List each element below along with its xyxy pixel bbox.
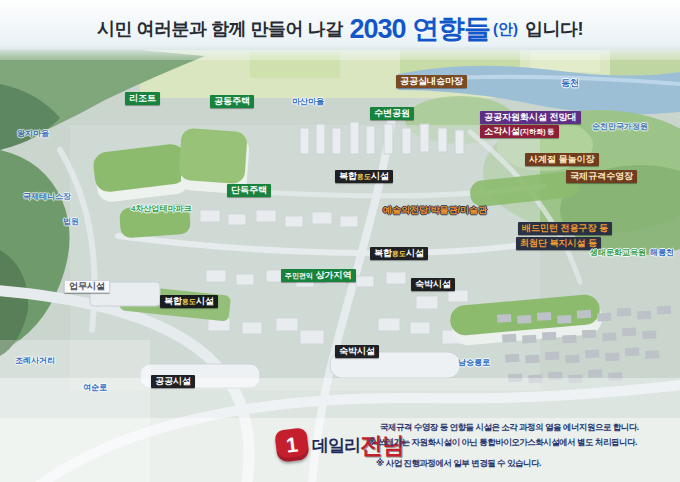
title-banner: 시민 여러분과 함께 만들어 나갈 2030 연향들 (안) 입니다! bbox=[0, 0, 680, 58]
label-arts-center: 예술의전당/박물관/미술관 bbox=[383, 206, 487, 215]
label-shopping-main: 상가지역 bbox=[316, 270, 352, 280]
press-image: 시민 여러분과 함께 만들어 나갈 2030 연향들 (안) 입니다! 리조트 … bbox=[0, 0, 680, 482]
label-intl-tennis: 국제테니스장 bbox=[23, 193, 71, 201]
mixed-use-part1: 복합 bbox=[164, 296, 182, 306]
disclaimer-line-2: ※ 쓰레기는 자원화시설이 아닌 통합바이오가스화시설에서 별도 처리됩니다. bbox=[368, 437, 637, 449]
mixed-use-part3: 시설 bbox=[196, 296, 214, 306]
label-haeryongcheon: 해룡천 bbox=[650, 249, 674, 257]
label-dongcheon: 동천 bbox=[561, 79, 579, 88]
label-detached-housing: 단독주택 bbox=[227, 184, 271, 197]
disclaimer-line-1: 국제규격 수영장 등 연향들 시설은 소각 과정의 열을 에너지원으로 합니다. bbox=[380, 422, 639, 434]
title-highlight: 2030 연향들 bbox=[349, 11, 490, 47]
label-riding-arena: 공공실내승마장 bbox=[396, 75, 467, 88]
label-lodging-2: 숙박시설 bbox=[335, 345, 379, 358]
label-shopping-small: 주민편익 bbox=[285, 272, 313, 279]
label-yeosun-ro: 여순로 bbox=[83, 384, 107, 392]
label-mixed-use-1: 복합용도시설 bbox=[335, 170, 393, 183]
label-industry-park: 4차산업테마파크 bbox=[131, 205, 191, 213]
mixed-use-part2: 용도 bbox=[392, 250, 406, 257]
disclaimer-line-3: ※ 사업 진행과정에서 일부 변경될 수 있습니다. bbox=[376, 458, 541, 470]
label-shopping: 주민편익 상가지역 bbox=[281, 269, 356, 282]
title-paren: (안) bbox=[493, 20, 518, 39]
label-incinerator: 소각시설(지하화) 등 bbox=[480, 125, 559, 138]
label-resort: 리조트 bbox=[125, 92, 160, 105]
label-intl-pool: 국제규격수영장 bbox=[566, 170, 637, 183]
mixed-use-part2: 용도 bbox=[357, 173, 371, 180]
label-national-garden: 순천만국가정원 bbox=[592, 123, 648, 131]
daily-jeonnam-logo-icon: 1 bbox=[274, 427, 310, 463]
label-water-play: 사계절 물놀이장 bbox=[525, 153, 599, 166]
label-lodging-1: 숙박시설 bbox=[411, 278, 455, 291]
mixed-use-part3: 시설 bbox=[406, 248, 424, 258]
label-namseungryong-ro: 남승룡로 bbox=[458, 359, 490, 367]
label-incinerator-main: 소각시설 bbox=[484, 126, 520, 136]
mixed-use-part2: 용도 bbox=[182, 298, 196, 305]
label-jorye-crossing: 조례사거리 bbox=[15, 357, 55, 365]
label-mixed-use-2: 복합용도시설 bbox=[370, 247, 428, 260]
label-eco-education: 생태문화교육원 bbox=[590, 249, 646, 257]
logo-text-daily: 데일리 bbox=[312, 434, 360, 457]
label-wangji-village: 왕지마을 bbox=[17, 130, 49, 138]
footer: 1 데일리 전남 국제규격 수영장 등 연향들 시설은 소각 과정의 열을 에너… bbox=[0, 415, 680, 482]
label-business: 업무시설 bbox=[64, 280, 110, 293]
label-welfare: 최첨단 복지시설 등 bbox=[516, 237, 601, 250]
title-prefix: 시민 여러분과 함께 만들어 나갈 bbox=[97, 17, 343, 41]
label-observatory: 공공자원화시설 전망대 bbox=[480, 111, 581, 124]
label-incinerator-sub: (지하화) 등 bbox=[520, 128, 555, 135]
label-waterside-park: 수변공원 bbox=[370, 107, 414, 120]
mixed-use-part1: 복합 bbox=[374, 248, 392, 258]
label-apartments: 공동주택 bbox=[210, 95, 254, 108]
label-mixed-use-3: 복합용도시설 bbox=[160, 295, 218, 308]
label-public-facility: 공공시설 bbox=[151, 375, 195, 388]
mixed-use-part3: 시설 bbox=[371, 171, 389, 181]
label-masan-village: 마산마을 bbox=[292, 98, 324, 106]
label-badminton: 배드민턴 전용구장 등 bbox=[518, 222, 612, 235]
title-suffix: 입니다! bbox=[525, 17, 583, 41]
mixed-use-part1: 복합 bbox=[339, 171, 357, 181]
label-court: 법원 bbox=[63, 218, 79, 226]
